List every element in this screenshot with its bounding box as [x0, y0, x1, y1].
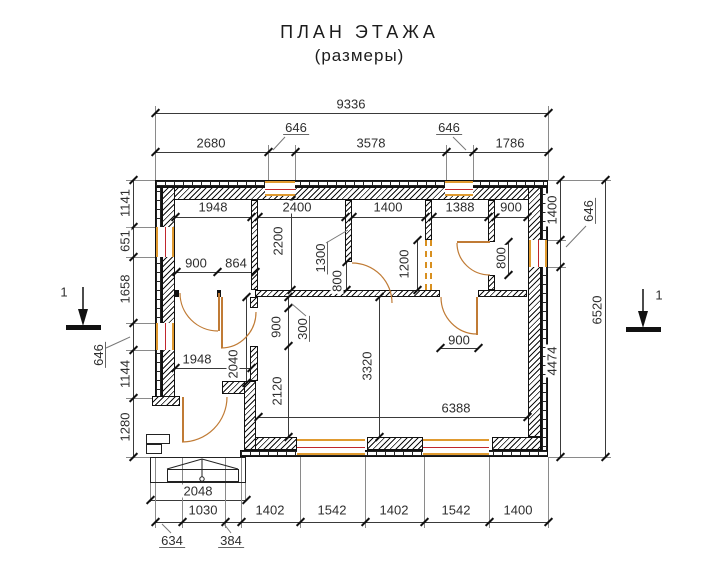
porch	[151, 458, 246, 483]
door-arcs	[180, 243, 490, 442]
plan-overlay-shapes	[0, 0, 719, 571]
door-arc	[352, 263, 392, 303]
section-marker-left	[66, 287, 101, 330]
door-arc	[221, 312, 256, 348]
door-arc	[457, 243, 490, 275]
leader-lines	[106, 137, 586, 533]
section-marker-right	[626, 289, 661, 332]
door-arc	[180, 293, 218, 331]
entrance-door-arc	[182, 397, 227, 442]
door-arc	[441, 297, 477, 334]
floor-plan-drawing: ПЛАН ЭТАЖА (размеры) 9336268064635786461…	[0, 0, 719, 571]
